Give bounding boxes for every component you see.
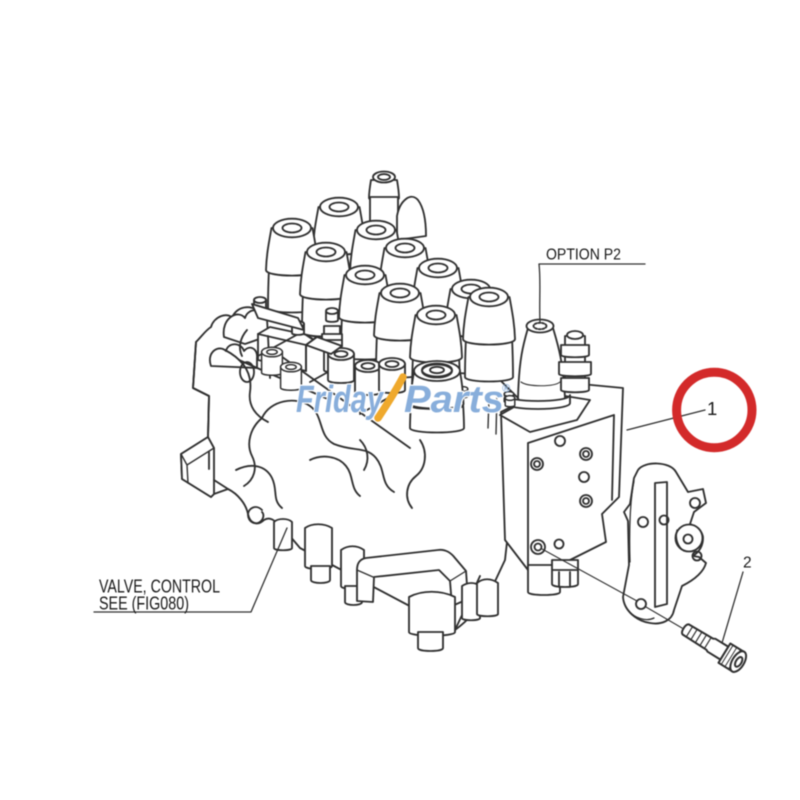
svg-text:1: 1 bbox=[707, 398, 717, 419]
svg-text:OPTION P2: OPTION P2 bbox=[546, 247, 621, 264]
svg-text:SEE (FIG080): SEE (FIG080) bbox=[99, 594, 189, 614]
svg-text:Parts: Parts bbox=[404, 379, 504, 421]
svg-text:2: 2 bbox=[743, 555, 752, 572]
svg-text:®: ® bbox=[502, 383, 511, 395]
svg-text:Friday: Friday bbox=[296, 379, 384, 421]
